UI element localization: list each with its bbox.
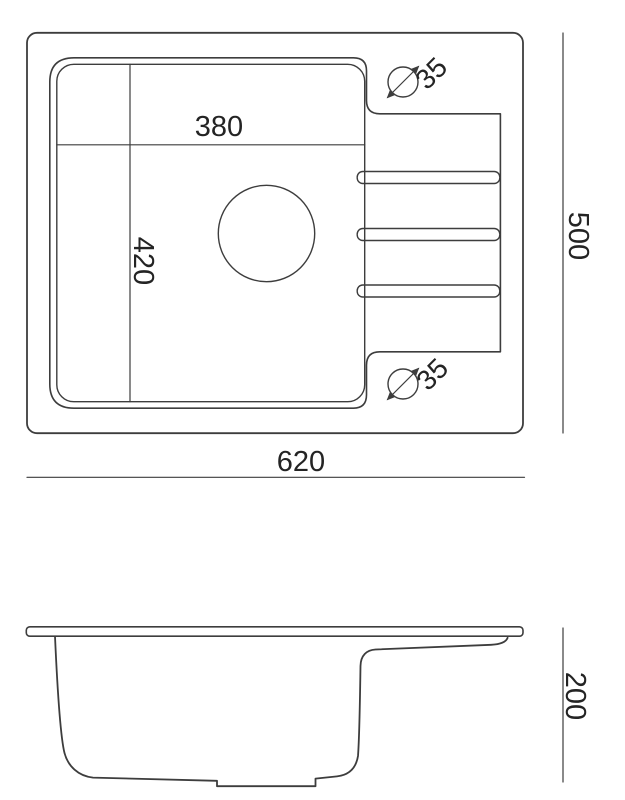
drainboard-rib <box>357 172 500 184</box>
side-view: 200 <box>26 627 591 786</box>
dimension-overall-height: 200 <box>559 628 591 782</box>
bowl-depth-label: 420 <box>127 237 159 285</box>
sink-technical-drawing: 380 420 35 35 <box>0 0 625 800</box>
overall-height-label: 200 <box>559 672 591 720</box>
bowl-width-label: 380 <box>195 111 243 143</box>
drainboard-ribs <box>357 172 500 298</box>
drawing-canvas: 380 420 35 35 <box>0 0 625 800</box>
drainboard-rib <box>357 285 500 297</box>
side-rim-bar <box>26 627 523 636</box>
side-profile-outline <box>55 636 508 786</box>
faucet-hole-bottom: 35 <box>388 352 455 399</box>
top-view: 380 420 35 35 <box>27 33 594 478</box>
overall-width-label: 620 <box>277 446 325 478</box>
overall-depth-label: 500 <box>562 212 594 260</box>
faucet-hole-top: 35 <box>388 51 454 97</box>
dimension-overall-depth: 500 <box>562 33 594 433</box>
dimension-overall-width: 620 <box>27 446 525 478</box>
drain-hole <box>218 185 314 281</box>
drainboard-rib <box>357 229 500 241</box>
